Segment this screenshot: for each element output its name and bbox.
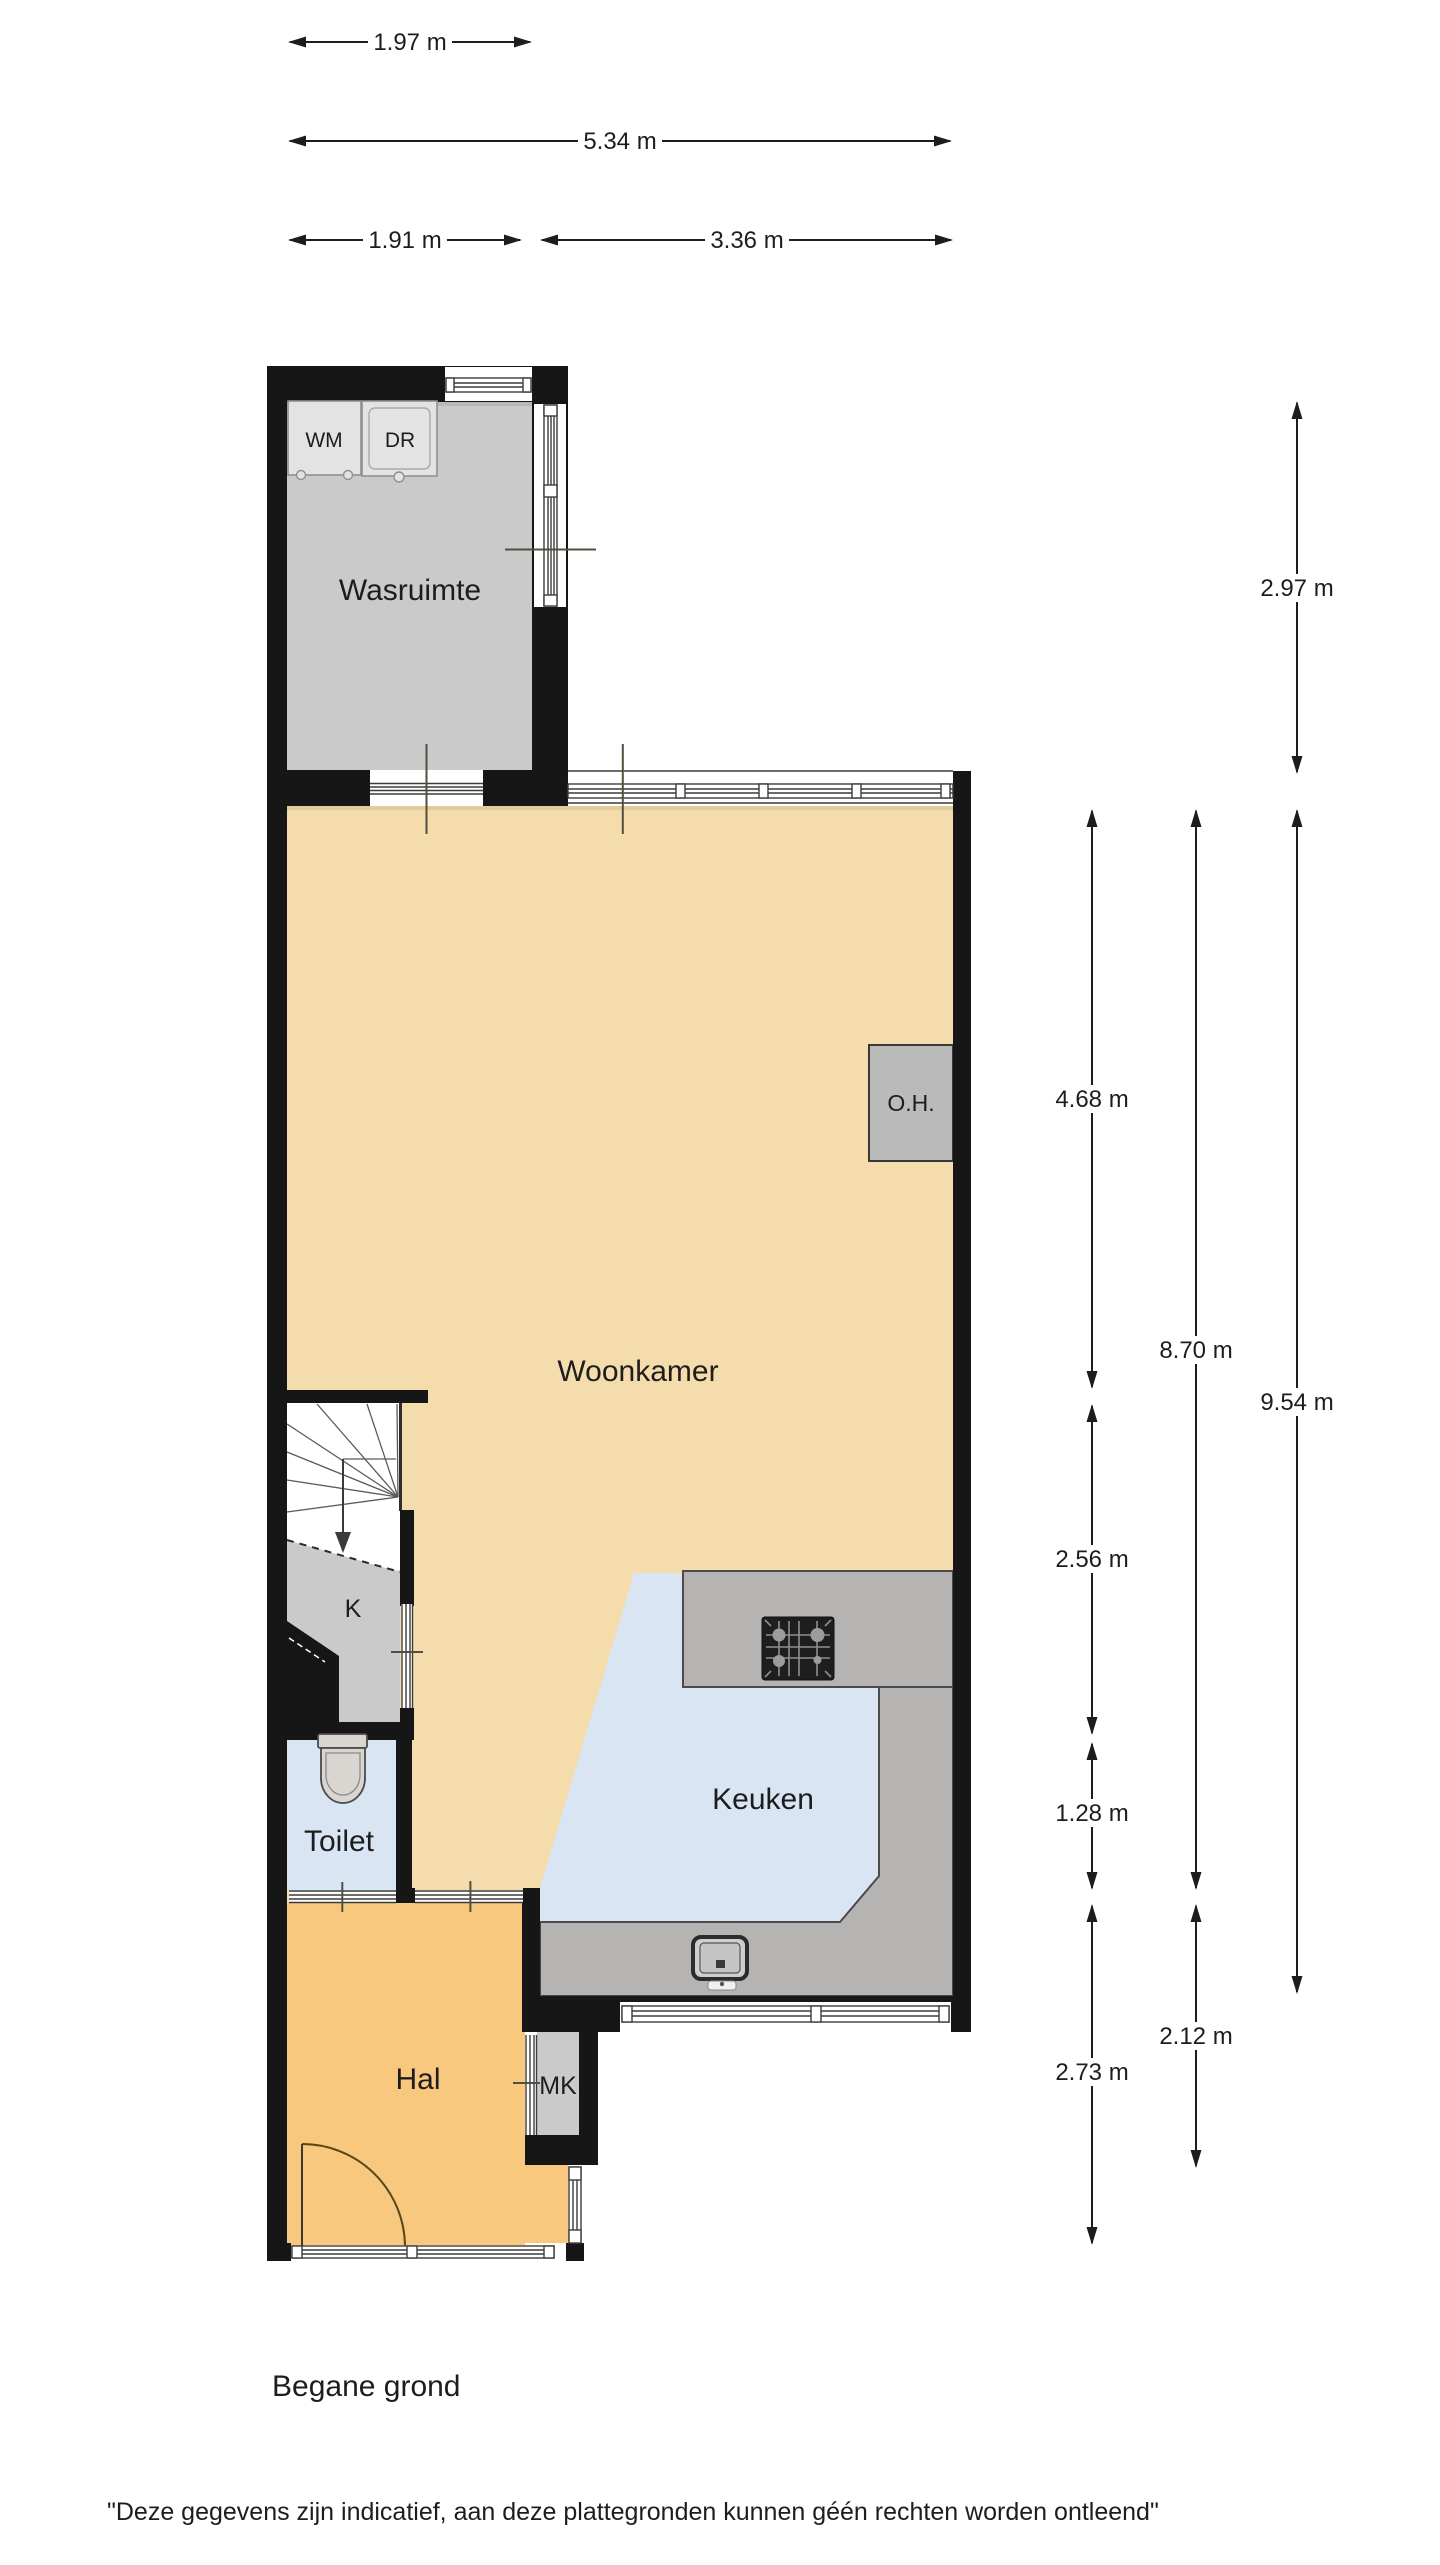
svg-text:Keuken: Keuken <box>712 1783 814 1816</box>
svg-text:MK: MK <box>539 2072 577 2100</box>
svg-text:1.91 m: 1.91 m <box>368 227 441 254</box>
svg-text:9.54 m: 9.54 m <box>1260 1389 1333 1416</box>
svg-text:2.73 m: 2.73 m <box>1055 2059 1128 2086</box>
svg-text:Hal: Hal <box>395 2063 440 2096</box>
svg-text:2.12 m: 2.12 m <box>1159 2023 1232 2050</box>
svg-text:WM: WM <box>305 429 342 452</box>
svg-text:3.36 m: 3.36 m <box>710 227 783 254</box>
svg-text:2.97 m: 2.97 m <box>1260 575 1333 602</box>
svg-text:Woonkamer: Woonkamer <box>557 1355 718 1388</box>
svg-text:1.97 m: 1.97 m <box>373 29 446 56</box>
svg-text:O.H.: O.H. <box>887 1090 934 1116</box>
svg-text:1.28 m: 1.28 m <box>1055 1800 1128 1827</box>
svg-text:Begane grond: Begane grond <box>272 2370 461 2403</box>
svg-text:Wasruimte: Wasruimte <box>339 574 481 607</box>
svg-text:Toilet: Toilet <box>304 1825 375 1858</box>
svg-text:5.34 m: 5.34 m <box>583 128 656 155</box>
svg-text:8.70 m: 8.70 m <box>1159 1337 1232 1364</box>
svg-text:4.68 m: 4.68 m <box>1055 1086 1128 1113</box>
svg-text:"Deze gegevens zijn indicatief: "Deze gegevens zijn indicatief, aan deze… <box>107 2498 1159 2526</box>
svg-text:DR: DR <box>385 429 415 452</box>
svg-text:2.56 m: 2.56 m <box>1055 1546 1128 1573</box>
svg-text:K: K <box>345 1595 362 1623</box>
